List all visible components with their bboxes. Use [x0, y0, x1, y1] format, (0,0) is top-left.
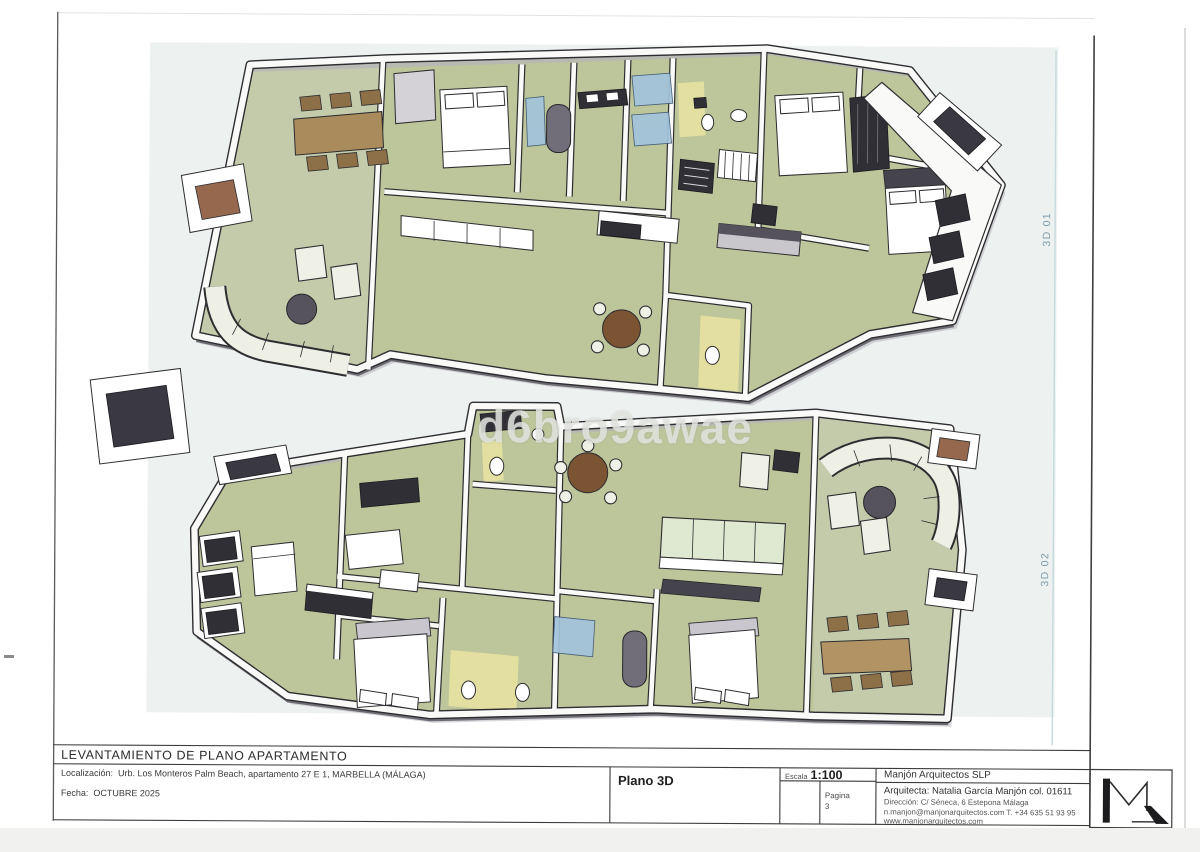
armchair: [295, 245, 327, 281]
sofa: [660, 517, 785, 564]
scale-label: Escala: [785, 772, 808, 781]
round-dining-table: [602, 310, 640, 348]
bathtub: [547, 104, 571, 152]
view-label-3d-02: 3D 02: [1039, 539, 1053, 599]
paper-edge-right: [1184, 28, 1186, 848]
armchair: [827, 492, 859, 529]
scan-artifact: [4, 655, 14, 658]
coffee-table: [287, 294, 317, 324]
watermark: d6bro9awae: [477, 399, 753, 455]
firm-logo: [1103, 779, 1169, 824]
drawing-name: Plano 3D: [618, 773, 674, 788]
louvered-window: [206, 609, 239, 635]
page-number: 3: [825, 801, 850, 812]
location-label: Localización:: [61, 768, 113, 778]
scale-cell: Escala1:100: [785, 766, 843, 784]
toilet: [705, 346, 719, 364]
bathtub: [623, 631, 647, 687]
date-value: OCTUBRE 2025: [93, 788, 160, 798]
location-value: Urb. Los Monteros Palm Beach, apartament…: [118, 768, 426, 780]
armchair: [331, 263, 361, 299]
contact-line: n.manjon@manjonarquitectos.com T. +34 63…: [884, 807, 1076, 817]
shower-glass: [632, 73, 673, 106]
louvered-window: [202, 573, 235, 599]
paper-edge-bottom: [0, 828, 1200, 852]
dining-table: [821, 638, 912, 675]
page-cell: Pagina 3: [825, 790, 850, 812]
firm-name: Manjón Arquitectos SLP: [884, 769, 991, 781]
scanned-content: d6bro9awae 3D 01 3D 02 LEVANTAMIENTO DE …: [0, 0, 1200, 852]
dining-table: [293, 111, 383, 156]
address-line: Dirección: C/ Séneca, 6 Estepona Málaga: [884, 797, 1029, 807]
architect-line: Arquitecta: Natalia García Manjón col. 0…: [884, 785, 1072, 797]
toilet: [461, 681, 475, 699]
armchair: [740, 453, 770, 490]
sheet-title: LEVANTAMIENTO DE PLANO APARTAMENTO: [61, 748, 347, 764]
round-dining-table: [568, 453, 608, 493]
washbasin: [731, 110, 747, 122]
scale-value: 1:100: [811, 768, 843, 782]
website-line: www.manjonarquitectos.com: [884, 816, 983, 826]
toilet: [702, 114, 714, 130]
date-row: Fecha:OCTUBRE 2025: [61, 788, 160, 799]
tv-panel: [773, 450, 800, 473]
date-label: Fecha:: [61, 788, 89, 798]
shower-glass: [553, 617, 595, 657]
louvered-window: [204, 537, 237, 563]
frame-left-line: [53, 12, 58, 821]
frame-right-line: [1090, 36, 1094, 828]
view-label-3d-01: 3D 01: [1041, 199, 1055, 259]
bed: [251, 542, 297, 596]
toilet: [515, 683, 529, 701]
armchair: [860, 517, 890, 554]
toilet: [490, 457, 504, 475]
page-label: Pagina: [825, 790, 850, 801]
coffee-table: [863, 486, 895, 518]
drawing-sheet: d6bro9awae 3D 01 3D 02 LEVANTAMIENTO DE …: [0, 0, 1200, 852]
location-row: Localización:Urb. Los Monteros Palm Beac…: [61, 768, 426, 780]
